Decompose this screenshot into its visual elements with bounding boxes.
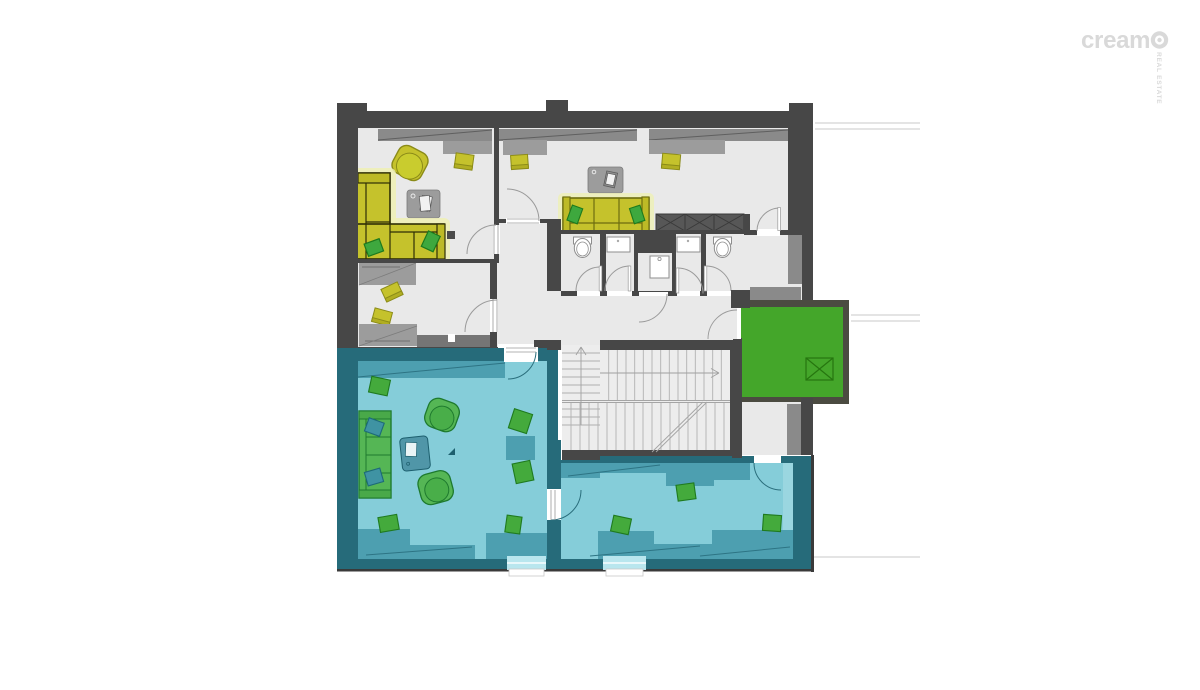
- svg-text:REAL ESTATE: REAL ESTATE: [1155, 52, 1162, 104]
- svg-text:cream: cream: [1081, 27, 1150, 54]
